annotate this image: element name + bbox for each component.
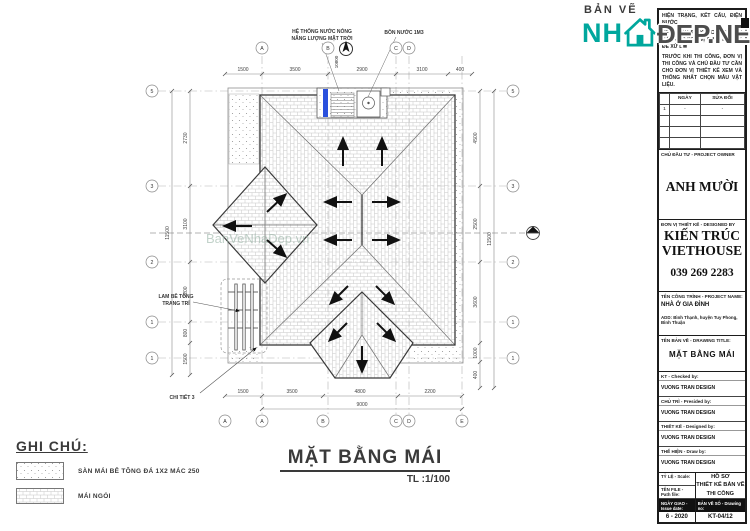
solar-collector <box>323 89 328 117</box>
svg-text:4500: 4500 <box>473 132 479 143</box>
logo-prefix: BẢN VẼ <box>584 4 750 16</box>
issue-date-value: 6 - 2020 <box>659 512 695 522</box>
logo-nh: NH <box>582 20 623 47</box>
svg-text:2: 2 <box>151 260 154 266</box>
table-row: 1 - - <box>660 104 745 115</box>
project-address: ADD: Bình Thạnh, huyện Tuy Phong, Bình T… <box>659 308 745 325</box>
drawing-no-label: BẢN VẼ SỐ - Drawing no: <box>696 499 745 512</box>
svg-text:D: D <box>407 46 411 52</box>
site-logo: BẢN VẼ NH ĐẸP.NET <box>582 4 750 47</box>
revision-table: NGÀY SỬA ĐỔI 1 - - <box>659 93 745 150</box>
project-name: NHÀ Ở GIA ĐÌNH <box>659 299 745 308</box>
svg-text:3500: 3500 <box>289 67 300 73</box>
designer-phone: 039 269 2283 <box>659 267 745 279</box>
svg-text:2500: 2500 <box>473 218 479 229</box>
table-row <box>660 126 745 137</box>
svg-text:3: 3 <box>512 184 515 190</box>
svg-text:800: 800 <box>183 329 189 338</box>
svg-text:2200: 2200 <box>183 286 189 297</box>
footer-section: TỶ LỆ - Scale: TÊN FILE - Path file: NGÀ… <box>659 473 745 522</box>
north-arrow-icon <box>340 41 353 56</box>
svg-text:3: 3 <box>151 184 154 190</box>
concrete-patch-top <box>388 89 455 95</box>
svg-text:B: B <box>326 46 330 52</box>
section-marker <box>527 227 540 240</box>
project-label: TÊN CÔNG TRÌNH - PROJECT NAME: <box>659 292 745 300</box>
issue-date-label: NGÀY GIAO - Issue date: <box>659 499 695 512</box>
plan-title-text: MẶT BẰNG MÁI <box>280 447 450 472</box>
svg-text:1: 1 <box>512 320 515 326</box>
drawing-title-label: TÊN BẢN VẼ - DRAWING TITLE: <box>659 336 745 344</box>
solar-label: HỆ THỐNG NƯỚC NÓNG <box>292 27 352 35</box>
drawing-title-value: MẶT BẰNG MÁI <box>659 350 745 359</box>
document-type: HỒ SƠ THIẾT KẾ BẢN VẼ THI CÔNG <box>696 473 745 499</box>
svg-text:11500: 11500 <box>165 226 171 240</box>
corner-marker <box>741 18 749 28</box>
solar-label-2: NĂNG LƯỢNG MẶT TRỜI <box>291 34 353 42</box>
designer-label: ĐƠN VỊ THIẾT KẾ - DESIGNED BY <box>659 220 745 228</box>
title-block: HIỆN TRẠNG, KẾT CẤU, ĐIỆN NƯỚC. NẾU THẤY… <box>657 8 747 524</box>
logo-suffix: ĐẸP.NET <box>657 21 750 47</box>
concrete-patch-right <box>455 96 462 344</box>
louver-label-2: TRANG TRÍ <box>162 299 190 307</box>
legend-item: MÁI NGÓI <box>16 488 200 504</box>
svg-text:3100: 3100 <box>183 218 189 229</box>
svg-text:1500: 1500 <box>237 389 248 395</box>
personnel-row: KT - Checked by: VUONG TRAN DESIGN <box>659 372 745 397</box>
svg-text:2200: 2200 <box>424 389 435 395</box>
svg-text:4800: 4800 <box>354 389 365 395</box>
legend-item: SÀN MÁI BÊ TÔNG ĐÁ 1X2 MÁC 250 <box>16 462 200 480</box>
plan-scale: TL :1/100 <box>280 472 450 485</box>
svg-text:1: 1 <box>512 356 515 362</box>
designer-name: VIETHOUSE <box>659 243 745 259</box>
file-label: TÊN FILE - Path file: <box>659 486 695 499</box>
revision-col-change: SỬA ĐỔI <box>700 94 744 105</box>
svg-text:3100: 3100 <box>416 67 427 73</box>
svg-text:1: 1 <box>151 356 154 362</box>
legend: GHI CHÚ: SÀN MÁI BÊ TÔNG ĐÁ 1X2 MÁC 250 … <box>16 438 200 504</box>
svg-text:5: 5 <box>151 89 154 95</box>
drawing-no-value: KT-04/12 <box>696 512 745 522</box>
designer-name: KIẾN TRÚC <box>659 228 745 244</box>
owner-label: CHỦ ĐẦU TƯ - PROJECT OWNER <box>659 150 745 158</box>
svg-text:A: A <box>260 46 264 52</box>
revision-col-date: NGÀY <box>670 94 701 105</box>
svg-text:2730: 2730 <box>183 132 189 143</box>
tile-swatch <box>16 488 64 504</box>
personnel-row: THỂ HIỆN - Draw by: VUONG TRAN DESIGN <box>659 447 745 471</box>
project-section: TÊN CÔNG TRÌNH - PROJECT NAME: NHÀ Ở GIA… <box>659 292 745 336</box>
plan-title: MẶT BẰNG MÁI TL :1/100 <box>280 447 450 485</box>
concrete-patch-bottomright <box>413 346 462 362</box>
svg-text:5: 5 <box>512 89 515 95</box>
svg-text:A: A <box>260 419 264 425</box>
legend-heading: GHI CHÚ: <box>16 438 200 454</box>
svg-text:D: D <box>407 419 411 425</box>
svg-text:3600: 3600 <box>473 296 479 307</box>
svg-text:1000: 1000 <box>473 347 479 358</box>
svg-text:2: 2 <box>512 260 515 266</box>
solar-panel <box>331 93 354 117</box>
concrete-swatch <box>16 462 64 480</box>
designer-section: ĐƠN VỊ THIẾT KẾ - DESIGNED BY KIẾN TRÚC … <box>659 220 745 291</box>
svg-text:11500: 11500 <box>487 232 493 246</box>
svg-text:1500: 1500 <box>183 353 189 364</box>
drawing-sheet: BanVeNhaDep.vn <box>0 0 750 531</box>
deck-box <box>381 88 390 96</box>
svg-text:3500: 3500 <box>286 389 297 395</box>
drawing-title-section: TÊN BẢN VẼ - DRAWING TITLE: MẶT BẰNG MÁI <box>659 336 745 372</box>
svg-text:9000: 9000 <box>356 402 367 408</box>
tank-label: BỒN NƯỚC 1M3 <box>384 28 423 36</box>
svg-text:C: C <box>394 419 398 425</box>
owner-section: CHỦ ĐẦU TƯ - PROJECT OWNER ANH MƯỜI <box>659 150 745 220</box>
svg-text:1: 1 <box>151 320 154 326</box>
scale-label: TỶ LỆ - Scale: <box>659 473 695 486</box>
svg-text:A: A <box>223 419 227 425</box>
personnel-row: THIẾT KẾ - Designed by: VUONG TRAN DESIG… <box>659 422 745 447</box>
svg-text:1500: 1500 <box>237 67 248 73</box>
house-icon <box>623 16 657 47</box>
svg-text:B: B <box>321 419 325 425</box>
level-label: 10800 <box>334 55 339 68</box>
water-tank <box>357 91 380 117</box>
svg-text:2900: 2900 <box>356 67 367 73</box>
detail-label: CHI TIẾT 3 <box>169 394 194 401</box>
svg-text:C: C <box>394 46 398 52</box>
watermark: BanVeNhaDep.vn <box>206 231 309 246</box>
rooftop-deck <box>317 88 390 118</box>
personnel-row: CHỦ TRÌ - Presided by: VUONG TRAN DESIGN <box>659 397 745 422</box>
concrete-patch-topleft <box>229 94 259 164</box>
personnel-section: KT - Checked by: VUONG TRAN DESIGN CHỦ T… <box>659 372 745 473</box>
svg-text:400: 400 <box>456 67 465 73</box>
note-line: TRƯỚC KHI THI CÔNG, ĐƠN VỊ THI CÔNG VÀ C… <box>662 54 742 89</box>
table-row <box>660 137 745 148</box>
table-row <box>660 115 745 126</box>
owner-name: ANH MƯỜI <box>659 179 745 195</box>
svg-text:E: E <box>460 419 464 425</box>
svg-text:400: 400 <box>473 371 479 380</box>
